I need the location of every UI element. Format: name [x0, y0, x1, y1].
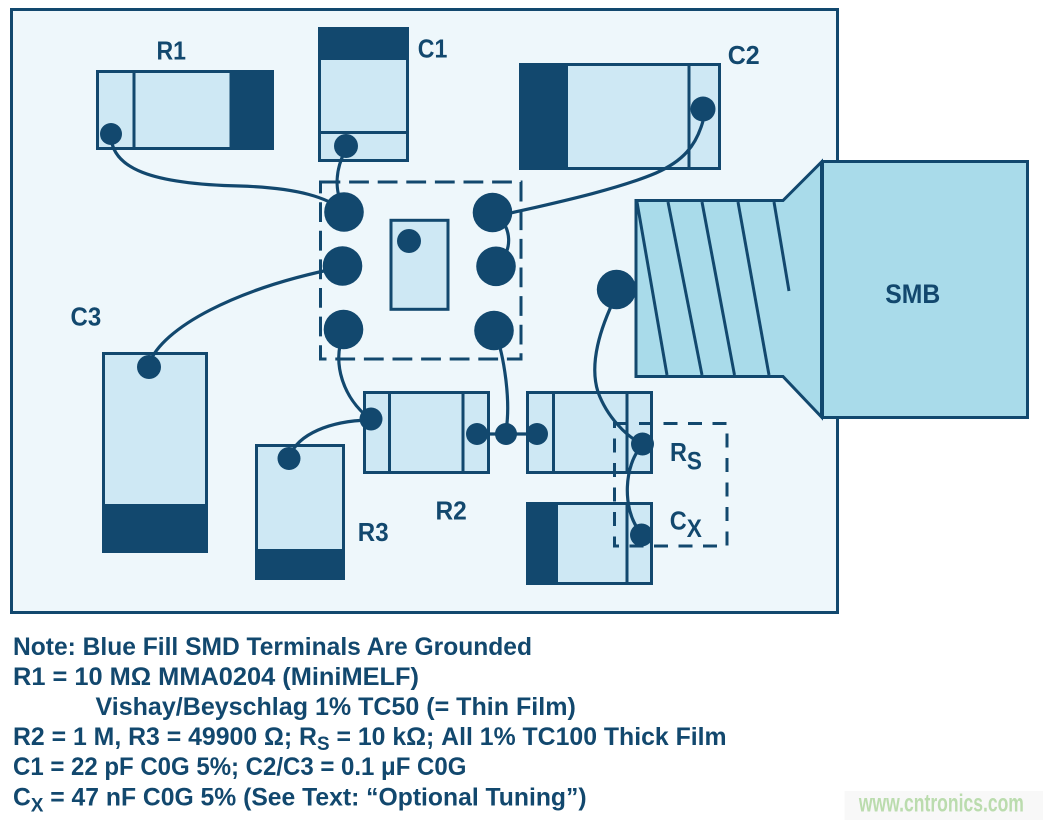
svg-text:Note: Blue Fill SMD Terminals: Note: Blue Fill SMD Terminals Are Ground… [13, 633, 532, 661]
svg-text:R3: R3 [358, 517, 389, 547]
svg-text:www.cntronics.com: www.cntronics.com [858, 789, 1024, 817]
svg-text:Vishay/Beyschlag 1% TC50 (= Th: Vishay/Beyschlag 1% TC50 (= Thin Film) [96, 693, 576, 721]
svg-text:R2: R2 [436, 495, 467, 525]
svg-text:CX = 47 nF C0G 5% (See Text: “: CX = 47 nF C0G 5% (See Text: “Optional T… [13, 783, 587, 816]
svg-text:R1: R1 [157, 36, 187, 66]
svg-text:R2 = 1 M, R3 = 49900 Ω; RS = 1: R2 = 1 M, R3 = 49900 Ω; RS = 10 kΩ; All … [13, 723, 727, 755]
svg-text:C1 = 22 pF C0G 5%; C2/C3 = 0.1: C1 = 22 pF C0G 5%; C2/C3 = 0.1 μF C0G [13, 753, 466, 781]
svg-text:C1: C1 [418, 33, 448, 63]
svg-text:SMB: SMB [885, 279, 940, 309]
svg-text:R1 = 10 MΩ MMA0204 (MiniMELF): R1 = 10 MΩ MMA0204 (MiniMELF) [13, 663, 419, 691]
svg-text:C3: C3 [71, 302, 102, 332]
svg-text:C2: C2 [728, 40, 760, 70]
